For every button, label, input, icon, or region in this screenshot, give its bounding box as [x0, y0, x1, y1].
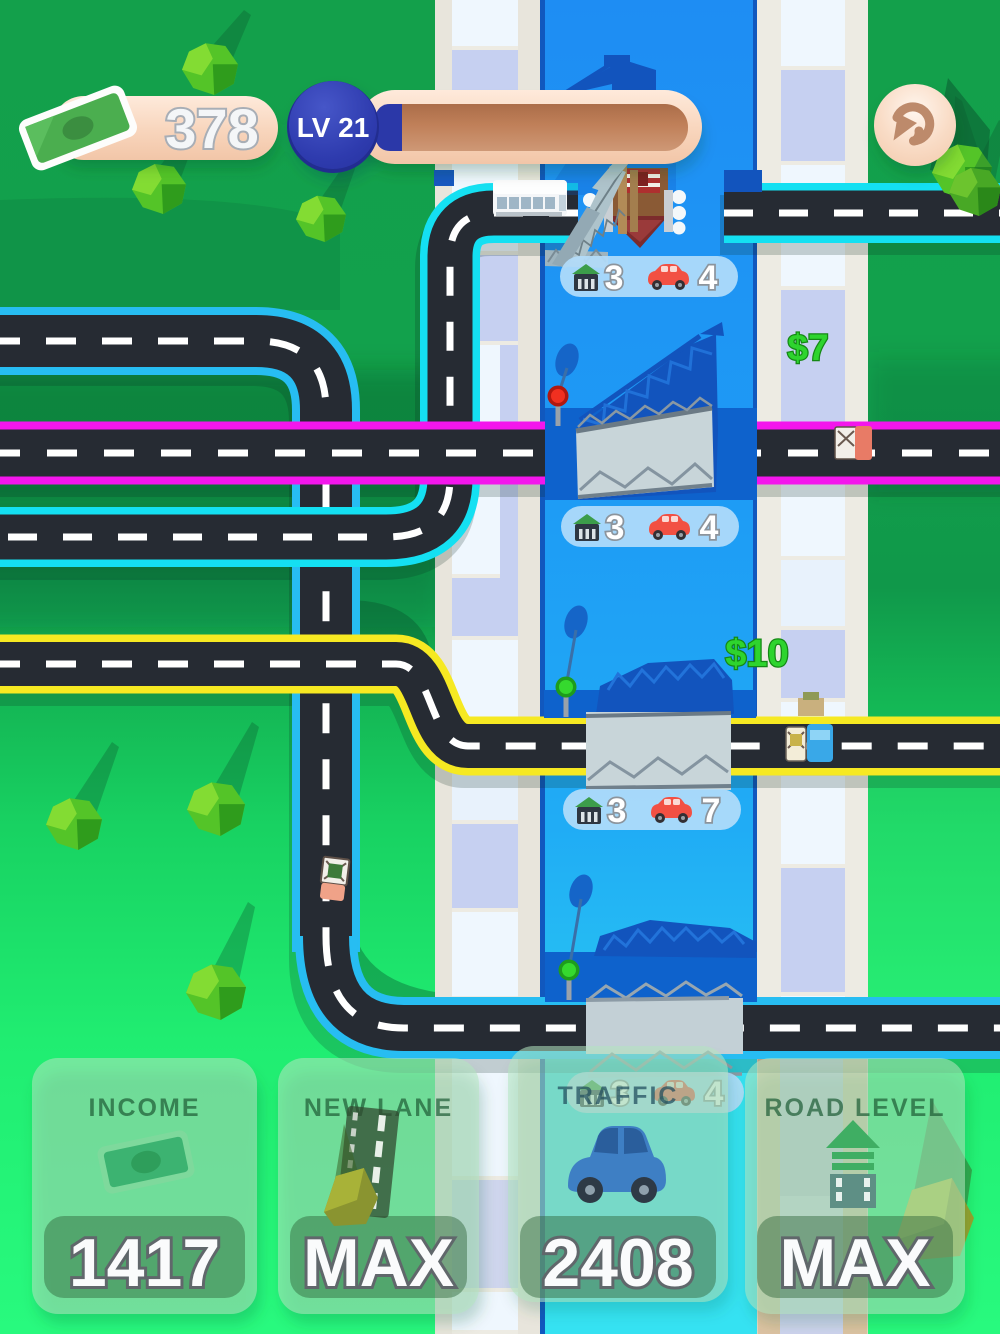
svg-text:TRAFFIC: TRAFFIC [558, 1082, 679, 1110]
svg-text:MAX: MAX [779, 1225, 930, 1301]
svg-text:2408: 2408 [542, 1225, 693, 1301]
svg-text:3: 3 [605, 259, 624, 297]
svg-text:7: 7 [702, 792, 721, 830]
svg-text:$10: $10 [725, 633, 788, 675]
svg-text:1417: 1417 [69, 1225, 220, 1301]
svg-text:INCOME: INCOME [89, 1094, 201, 1122]
svg-text:ROAD LEVEL: ROAD LEVEL [764, 1094, 945, 1122]
svg-text:3: 3 [606, 509, 625, 547]
svg-text:3: 3 [608, 792, 627, 830]
svg-text:$7: $7 [787, 327, 828, 368]
svg-text:4: 4 [700, 509, 719, 547]
svg-text:MAX: MAX [303, 1225, 454, 1301]
svg-text:378: 378 [165, 97, 258, 160]
svg-text:4: 4 [699, 259, 718, 297]
svg-text:LV 21: LV 21 [297, 112, 370, 143]
